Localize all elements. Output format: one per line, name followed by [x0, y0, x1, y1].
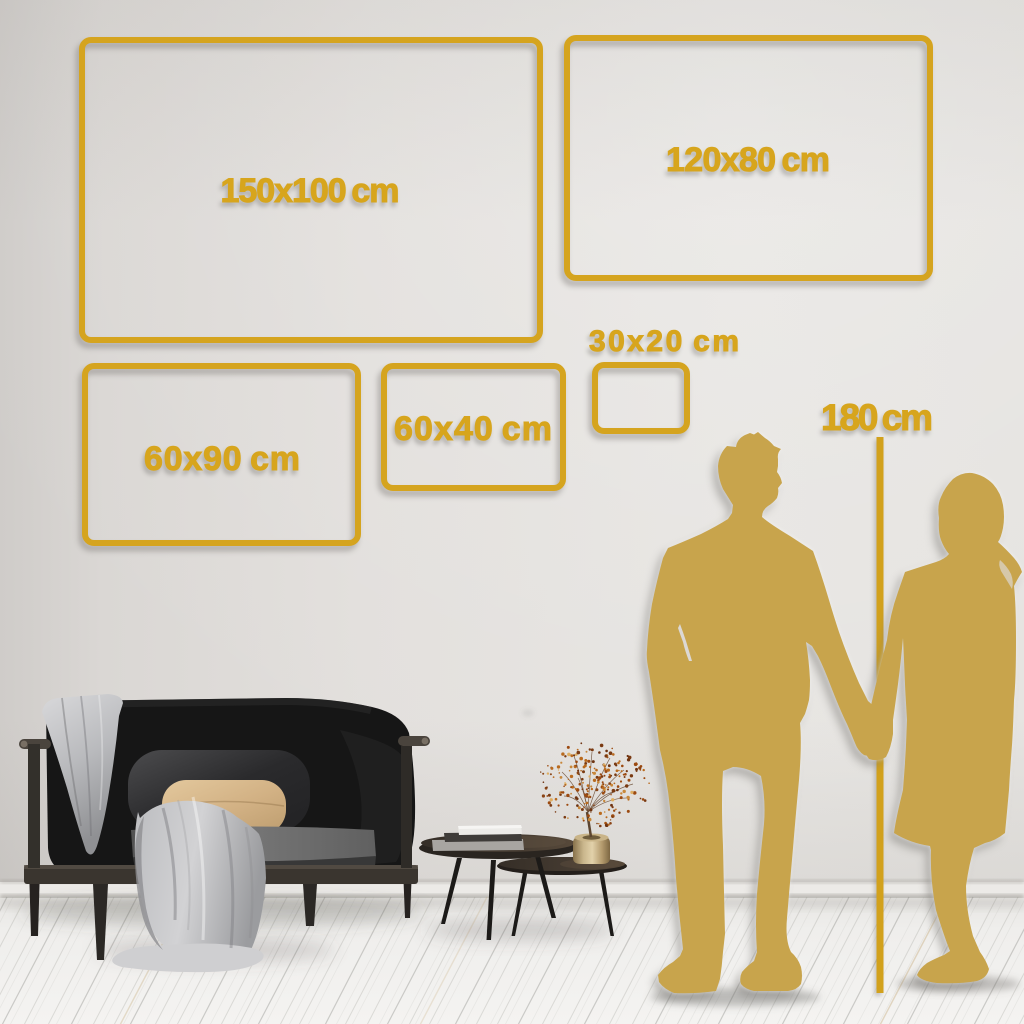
svg-text:180 cm: 180 cm [821, 397, 933, 438]
svg-text:150x100 cm: 150x100 cm [221, 172, 400, 210]
svg-text:60x40 cm: 60x40 cm [394, 410, 552, 448]
svg-text:60x90 cm: 60x90 cm [144, 440, 300, 478]
svg-text:120x80 cm: 120x80 cm [666, 141, 830, 179]
